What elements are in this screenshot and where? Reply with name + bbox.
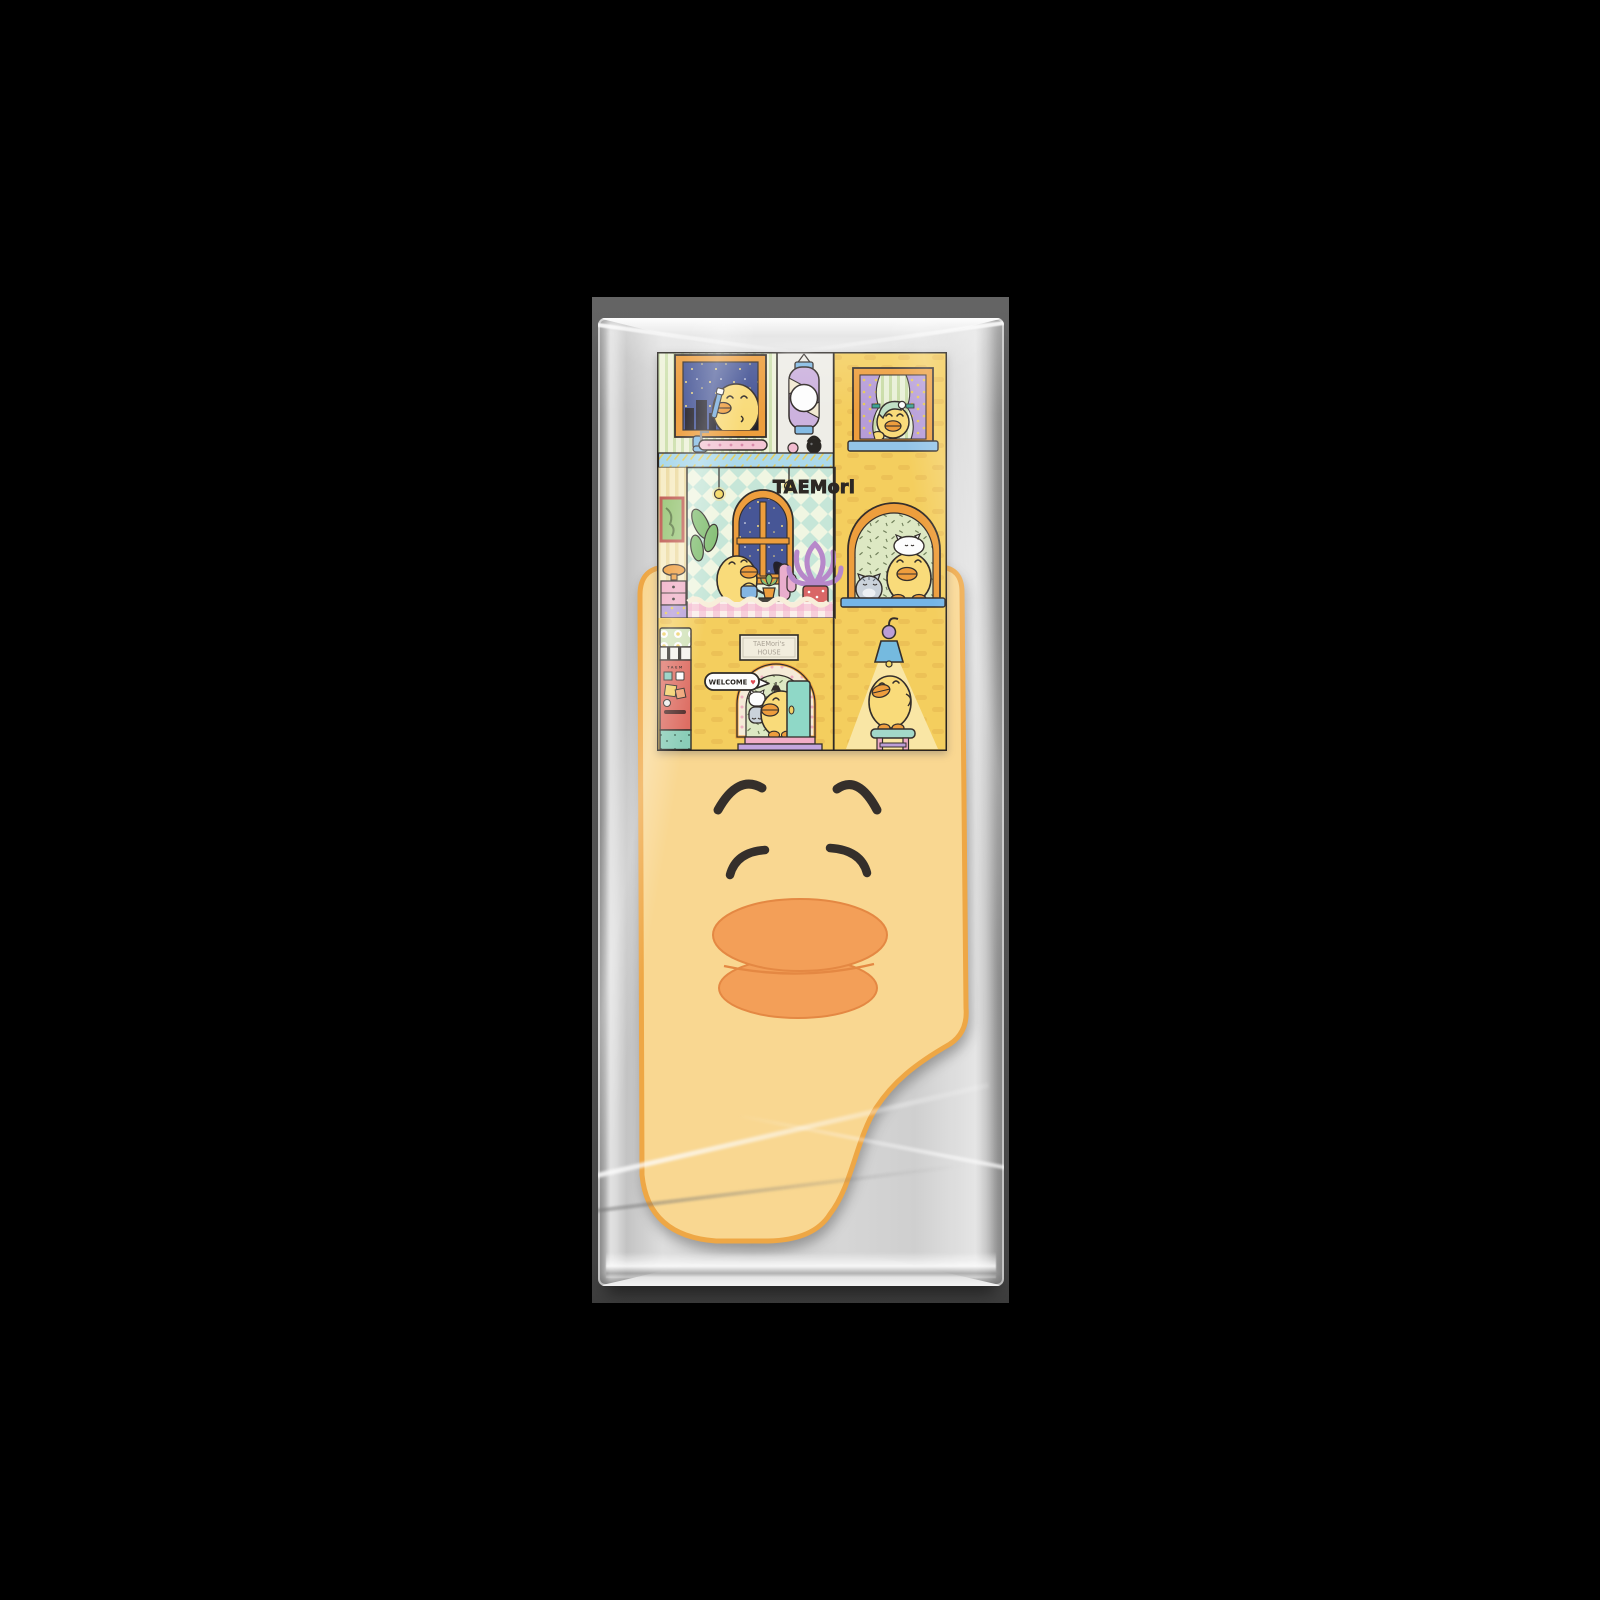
- hall-strip: [659, 468, 689, 619]
- window-sill: [841, 598, 945, 607]
- neighbor-building: [835, 354, 946, 751]
- house-sign-line1: TAEMori's: [752, 640, 785, 648]
- step-top: [745, 737, 815, 744]
- lamp-mount: [883, 626, 896, 639]
- curtain-window: [848, 368, 938, 451]
- duck-bill: [713, 899, 887, 1018]
- foil-bottom-ridge: [606, 1252, 996, 1278]
- door-panel: [787, 681, 810, 739]
- gym-column: [777, 354, 833, 454]
- bedroom-room: [659, 354, 778, 454]
- backer-card: TAEM TAEMori's HOUSE: [657, 352, 947, 751]
- punching-bag-icon: [789, 362, 819, 434]
- vending-machine: TAEM: [660, 628, 691, 750]
- house-sign-line2: HOUSE: [757, 649, 780, 657]
- vending-label: TAEM: [667, 666, 684, 670]
- drawer-chest-icon: [661, 581, 686, 605]
- pink-ball-icon: [788, 443, 798, 453]
- foil-top-fold: [598, 318, 1004, 354]
- ledge-band: [659, 453, 834, 468]
- welcome-heart-icon: ♥: [750, 680, 756, 687]
- window-sill: [848, 441, 938, 451]
- house-sign: TAEMori's HOUSE: [740, 635, 798, 660]
- bill-upper: [713, 899, 887, 971]
- clear-foil-package: TAEM TAEMori's HOUSE: [598, 318, 1004, 1286]
- purple-box-icon: [661, 605, 688, 618]
- welcome-text: WELCOME: [709, 679, 748, 687]
- night-window: [675, 355, 767, 452]
- brand-logo: TAEMori: [773, 478, 855, 498]
- photo-backdrop: TAEM TAEMori's HOUSE: [592, 297, 1009, 1303]
- product-photo: TAEM TAEMori's HOUSE: [0, 0, 1600, 1600]
- kettlebell-icon: [807, 437, 822, 454]
